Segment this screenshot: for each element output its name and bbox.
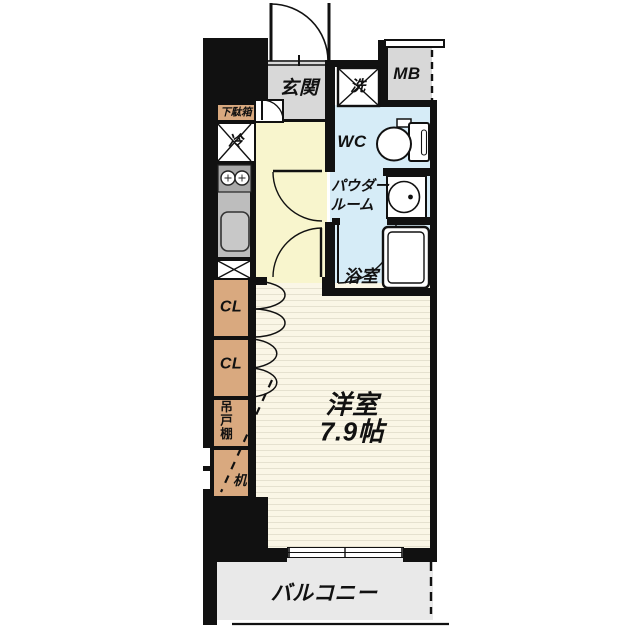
- closet-upper-label: CL: [220, 300, 242, 317]
- powder-room-label-line1: パウダー: [331, 179, 389, 194]
- balcony-label: バルコニー: [270, 583, 377, 605]
- bathroom-label: 浴室: [344, 268, 379, 286]
- main-room-name-label: 洋室: [325, 391, 378, 418]
- closet-door-arcs: [253, 281, 285, 397]
- entrance-label: 玄関: [279, 79, 318, 99]
- bathtub-icon: [383, 227, 429, 288]
- entrance-door-swing: [267, 3, 329, 66]
- floor-plan: 玄関 洗 MB WC パウダー ルーム 浴室 下駄箱 冷 CL CL 吊戸棚 机…: [0, 0, 640, 639]
- main-room-size-label: 7.9帖: [320, 418, 384, 445]
- powder-room-label-line2: ルーム: [330, 198, 373, 213]
- refrigerator-label: 冷: [228, 134, 244, 150]
- wc-label: WC: [337, 133, 366, 151]
- sliding-window-panels: [288, 547, 402, 558]
- closet-lower-label: CL: [220, 357, 242, 374]
- toilet-icon: [377, 119, 429, 161]
- hanging-cupboard-label: 吊戸棚: [216, 400, 235, 441]
- stove-icon: [218, 165, 251, 192]
- washer-label: 洗: [350, 79, 366, 95]
- kitchen-sink-icon: [221, 212, 249, 251]
- main-room-door-swing: [273, 228, 322, 277]
- meter-box-label: MB: [393, 65, 420, 83]
- plan-symbols: [0, 0, 640, 639]
- shoe-cabinet-door-swing: [262, 100, 283, 120]
- utility-cross-icon: [218, 261, 250, 278]
- shoe-cabinet-label: 下駄箱: [220, 107, 252, 118]
- desk-label: 机: [233, 474, 247, 488]
- wash-basin-icon: [387, 176, 426, 218]
- powder-room-door-swing: [273, 171, 322, 221]
